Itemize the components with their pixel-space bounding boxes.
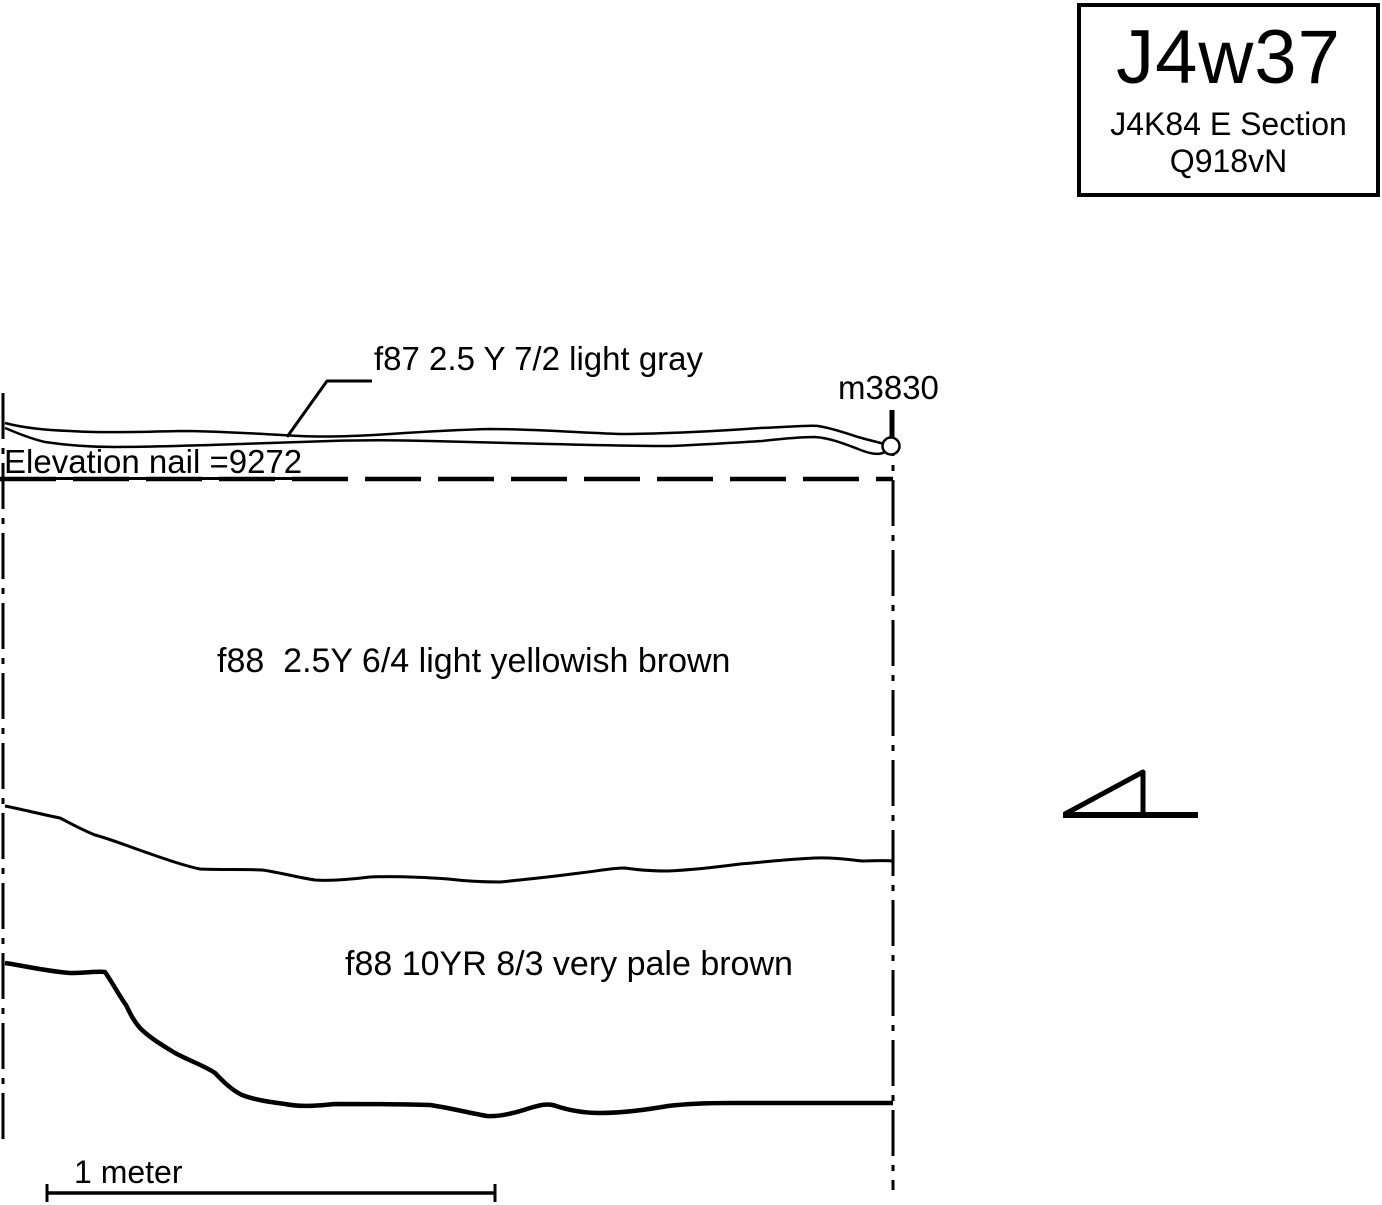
locus-name: Q918vN bbox=[1170, 143, 1287, 180]
elevation-note-label: Elevation nail =9272 bbox=[4, 444, 302, 480]
f88-upper-layer-label: f88 2.5Y 6/4 light yellowish brown bbox=[217, 643, 730, 680]
f88-lower-layer-label: f88 10YR 8/3 very pale brown bbox=[345, 946, 793, 983]
f88-lower-boundary-line bbox=[5, 963, 893, 1116]
f87-leader-line bbox=[287, 381, 372, 437]
scale-bar-label: 1 meter bbox=[74, 1155, 182, 1190]
section-name: J4K84 E Section bbox=[1110, 106, 1347, 143]
nail-circle-icon bbox=[883, 438, 900, 455]
nail-point-label: m3830 bbox=[838, 370, 939, 406]
drawing-code: J4w37 bbox=[1116, 20, 1341, 96]
section-drawing-page: J4w37 J4K84 E Section Q918vN f87 2.5 Y 7… bbox=[0, 0, 1382, 1205]
slope-triangle-icon bbox=[1065, 772, 1143, 814]
f88-upper-lower-boundary-line bbox=[5, 806, 893, 882]
title-box: J4w37 J4K84 E Section Q918vN bbox=[1077, 3, 1380, 197]
f87-layer-label: f87 2.5 Y 7/2 light gray bbox=[374, 341, 703, 377]
